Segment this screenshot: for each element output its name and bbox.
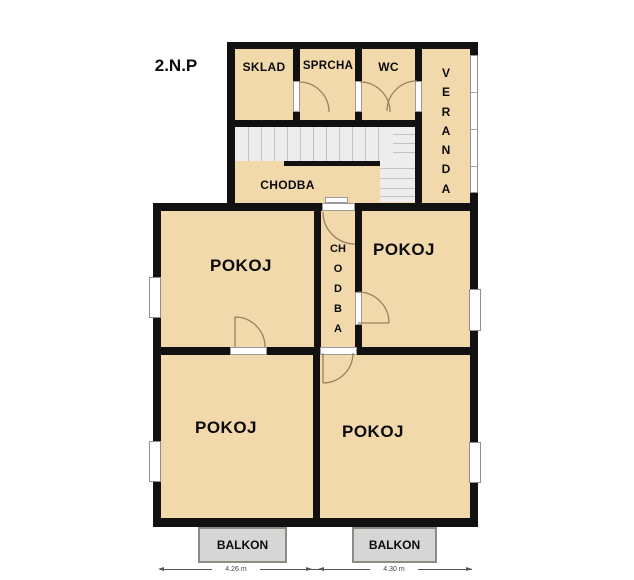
dimension-arrow <box>306 567 312 571</box>
staircase-flight <box>235 127 415 161</box>
stair-tread <box>248 127 249 161</box>
wall <box>415 49 422 211</box>
floor-title: 2.N.P <box>146 56 206 76</box>
stair-tread <box>339 127 340 161</box>
door-opening <box>320 347 357 355</box>
room-wc-label: WC <box>362 60 415 74</box>
room-chodba-upper-label: CHODBA <box>240 178 335 192</box>
stair-tread <box>365 127 366 161</box>
dimension-label-right: 4.30 m <box>370 565 418 574</box>
floor-plan: 2.N.P <box>0 0 634 580</box>
stair-tread <box>380 196 415 197</box>
stair-tread <box>300 127 301 161</box>
stair-tread <box>326 127 327 161</box>
window <box>149 277 161 318</box>
window <box>469 442 481 483</box>
window-mullion <box>471 129 477 130</box>
window-mullion <box>471 92 477 93</box>
room-pokoj-lower-left-label: POKOJ <box>161 418 291 438</box>
dimension-arrow <box>466 567 472 571</box>
stair-tread <box>393 152 415 153</box>
balcony-right: BALKON <box>352 527 437 563</box>
balcony-left-label: BALKON <box>217 538 268 552</box>
stair-tread <box>380 188 415 189</box>
room-pokoj-upper-left-label: POKOJ <box>166 256 316 276</box>
wall <box>153 203 478 211</box>
dimension-line <box>160 569 472 570</box>
dimension-label-left: 4.26 m <box>212 565 260 574</box>
stair-tread <box>393 143 415 144</box>
door-opening <box>355 81 362 112</box>
balcony-left: BALKON <box>198 527 287 563</box>
wall <box>314 211 321 347</box>
window <box>149 441 161 482</box>
room-pokoj-lower-right-label: POKOJ <box>313 422 433 442</box>
room-sprcha-label: SPRCHA <box>298 60 358 72</box>
stair-tread <box>274 127 275 161</box>
room-pokoj-upper-right-label: POKOJ <box>344 240 464 260</box>
veranda-window <box>470 55 478 193</box>
window-mullion <box>471 166 477 167</box>
wall <box>227 42 478 49</box>
wall <box>227 120 422 127</box>
wall <box>153 347 478 355</box>
wall <box>153 518 478 527</box>
wall <box>470 42 478 55</box>
stair-half-wall <box>284 161 380 166</box>
stair-tread <box>393 134 415 135</box>
stair-tread <box>287 127 288 161</box>
door-opening <box>293 81 300 112</box>
balcony-right-label: BALKON <box>369 538 420 552</box>
door-opening <box>415 81 422 112</box>
door-opening <box>355 292 362 325</box>
stair-tread <box>352 127 353 161</box>
stair-tread <box>313 127 314 161</box>
door-opening <box>230 347 267 355</box>
room-sklad-label: SKLAD <box>235 60 293 74</box>
room-veranda-label: V E R A N D A <box>422 64 470 199</box>
stair-tread <box>378 127 379 161</box>
door-leaf <box>325 197 348 203</box>
stair-tread <box>261 127 262 161</box>
door-opening <box>322 203 355 211</box>
window <box>469 289 481 331</box>
stair-tread <box>380 168 415 169</box>
wall <box>355 211 362 347</box>
dimension-arrow <box>158 567 164 571</box>
stair-tread <box>380 178 415 179</box>
dimension-arrow <box>318 567 324 571</box>
